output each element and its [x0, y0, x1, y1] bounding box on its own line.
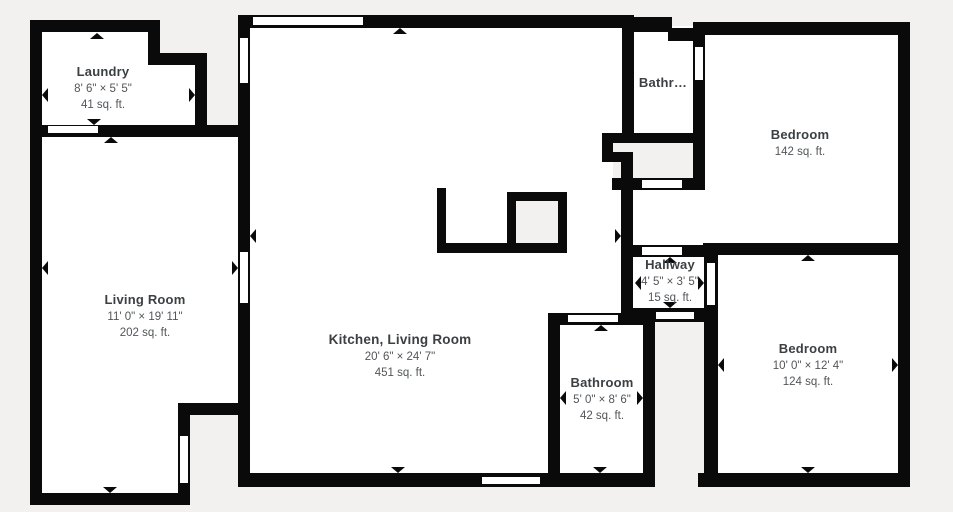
- dimension-arrow-down-icon: [87, 119, 101, 125]
- wall-segment: [693, 22, 910, 35]
- wall-segment: [622, 15, 634, 143]
- room-dimensions: 8' 6" × 5' 5": [74, 81, 132, 97]
- wall-segment: [602, 133, 705, 143]
- dimension-arrow-up-icon: [594, 325, 608, 331]
- bathroom-label: Bathroom 5' 0" × 8' 6" 42 sq. ft.: [571, 374, 634, 424]
- chimney-wall: [558, 192, 567, 253]
- hallway-label: Hallway 4' 5" × 3' 5" 15 sq. ft.: [641, 256, 699, 306]
- room-name: Hallway: [641, 256, 699, 274]
- kitchen-counter-wall: [437, 243, 567, 253]
- dimension-arrow-right-icon: [892, 358, 898, 372]
- room-area: 202 sq. ft.: [105, 325, 186, 341]
- dimension-arrow-down-icon: [801, 467, 815, 473]
- dimension-arrow-down-icon: [103, 487, 117, 493]
- room-area: 142 sq. ft.: [771, 144, 829, 160]
- dimension-arrow-left-icon: [718, 358, 724, 372]
- room-dimensions: 4' 5" × 3' 5": [641, 274, 699, 290]
- wall-segment: [643, 313, 655, 487]
- wall-segment: [548, 313, 560, 487]
- door-opening: [48, 126, 98, 133]
- door-opening: [180, 436, 188, 483]
- room-dimensions: 5' 0" × 8' 6": [571, 392, 634, 408]
- kitchen-living-room-label: Kitchen, Living Room 20' 6" × 24' 7" 451…: [329, 331, 472, 381]
- door-opening: [642, 180, 682, 188]
- floorplan-canvas: Laundry 8' 6" × 5' 5" 41 sq. ft. Living …: [0, 0, 953, 512]
- dimension-arrow-left-icon: [42, 88, 48, 102]
- dimension-arrow-left-icon: [635, 276, 641, 290]
- living-room-label: Living Room 11' 0" × 19' 11" 202 sq. ft.: [105, 291, 186, 341]
- dimension-arrow-left-icon: [42, 261, 48, 275]
- room-name: Bathr…: [639, 74, 687, 92]
- wall-segment: [625, 17, 672, 32]
- door-opening: [642, 247, 682, 255]
- dimension-arrow-down-icon: [593, 467, 607, 473]
- window-opening: [695, 47, 703, 80]
- door-opening: [240, 252, 248, 303]
- dimension-arrow-right-icon: [615, 229, 621, 243]
- room-area: 42 sq. ft.: [571, 408, 634, 424]
- room-name: Laundry: [74, 63, 132, 81]
- door-opening: [568, 315, 618, 322]
- dimension-arrow-up-icon: [801, 255, 815, 261]
- window-opening: [240, 38, 248, 83]
- wall-segment: [238, 473, 655, 487]
- wall-segment: [698, 473, 910, 487]
- door-opening: [707, 263, 715, 305]
- room-area: 451 sq. ft.: [329, 365, 472, 381]
- bathroom-top-label: Bathr…: [639, 74, 687, 92]
- room-area: 41 sq. ft.: [74, 97, 132, 113]
- wall-segment: [30, 493, 190, 505]
- dimension-arrow-up-icon: [104, 137, 118, 143]
- door-opening: [656, 312, 694, 319]
- wall-segment: [703, 243, 910, 255]
- wall-segment: [693, 133, 705, 190]
- dimension-arrow-right-icon: [637, 391, 643, 405]
- wall-segment: [238, 15, 250, 481]
- room-dimensions: 20' 6" × 24' 7": [329, 349, 472, 365]
- wall-segment: [621, 152, 633, 322]
- dimension-arrow-down-icon: [391, 467, 405, 473]
- bedroom-label: Bedroom 10' 0" × 12' 4" 124 sq. ft.: [773, 340, 843, 390]
- dimension-arrow-right-icon: [189, 88, 195, 102]
- wall-segment: [195, 53, 207, 132]
- room-name: Bedroom: [771, 126, 829, 144]
- dimension-arrow-up-icon: [393, 28, 407, 34]
- dimension-arrow-left-icon: [250, 229, 256, 243]
- bedroom-top-label: Bedroom 142 sq. ft.: [771, 126, 829, 160]
- dimension-arrow-right-icon: [232, 261, 238, 275]
- wall-segment: [30, 20, 160, 32]
- dimension-arrow-left-icon: [560, 391, 566, 405]
- dimension-arrow-up-icon: [90, 33, 104, 39]
- exterior-notch: [190, 415, 238, 505]
- room-area: 124 sq. ft.: [773, 374, 843, 390]
- chimney-wall: [507, 192, 516, 253]
- dimension-arrow-right-icon: [698, 276, 704, 290]
- room-name: Kitchen, Living Room: [329, 331, 472, 349]
- wall-segment: [30, 20, 42, 505]
- room-name: Bathroom: [571, 374, 634, 392]
- window-opening: [253, 17, 363, 25]
- window-opening: [482, 477, 540, 484]
- room-name: Bedroom: [773, 340, 843, 358]
- room-dimensions: 11' 0" × 19' 11": [105, 309, 186, 325]
- room-name: Living Room: [105, 291, 186, 309]
- living-room-floor: [36, 128, 244, 415]
- chimney-interior: [516, 201, 558, 245]
- laundry-label: Laundry 8' 6" × 5' 5" 41 sq. ft.: [74, 63, 132, 113]
- room-dimensions: 10' 0" × 12' 4": [773, 358, 843, 374]
- room-area: 15 sq. ft.: [641, 290, 699, 306]
